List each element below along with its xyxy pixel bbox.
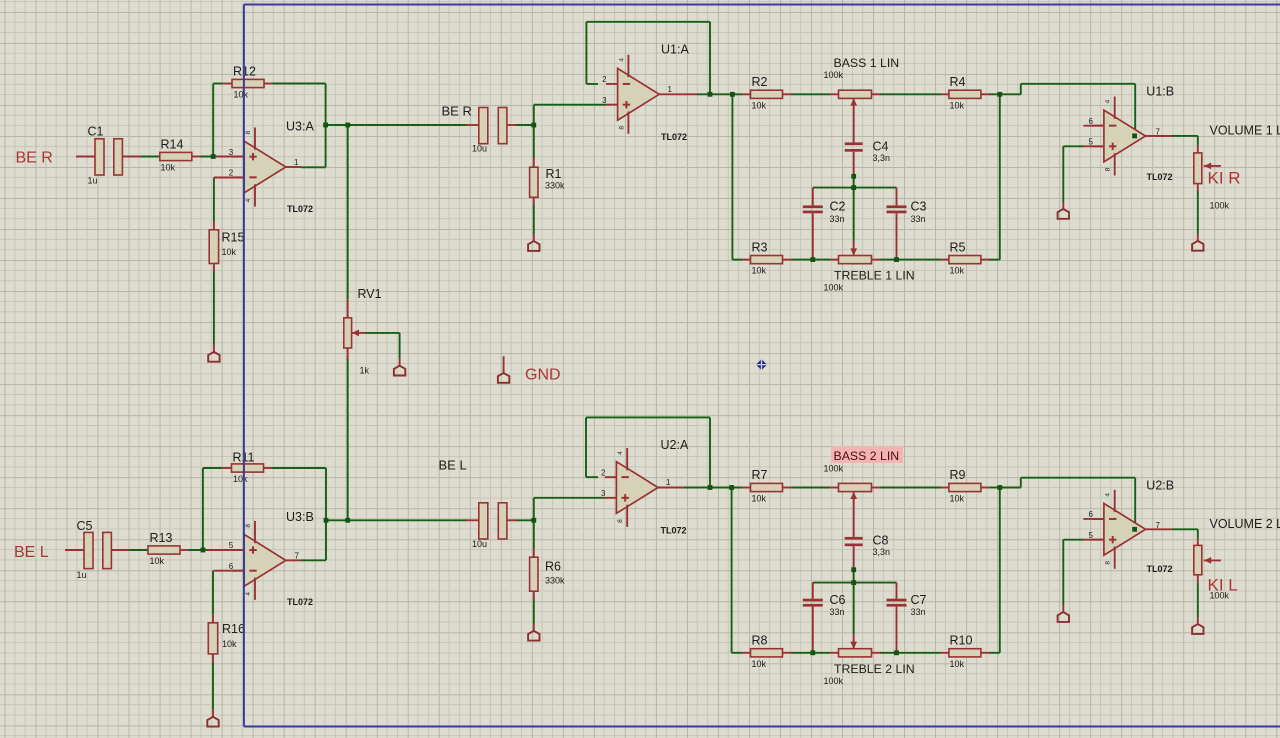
svg-text:100k: 100k [824, 676, 844, 686]
svg-text:5: 5 [1088, 138, 1093, 147]
svg-text:8: 8 [245, 130, 252, 134]
svg-text:8: 8 [1105, 561, 1112, 565]
svg-text:U2:A: U2:A [661, 438, 689, 452]
svg-text:U3:A: U3:A [286, 120, 314, 134]
svg-text:10k: 10k [950, 101, 965, 111]
svg-text:4: 4 [1105, 99, 1112, 103]
svg-text:8: 8 [1105, 167, 1112, 171]
svg-text:R1: R1 [546, 167, 562, 181]
svg-text:TL072: TL072 [287, 204, 313, 214]
svg-text:R4: R4 [950, 75, 966, 89]
svg-text:3: 3 [602, 96, 607, 105]
svg-text:10k: 10k [752, 266, 767, 276]
svg-text:330k: 330k [545, 181, 565, 191]
svg-text:VOLUME 2 LIN: VOLUME 2 LIN [1210, 517, 1280, 531]
svg-text:10k: 10k [752, 101, 767, 111]
svg-text:BE R: BE R [442, 104, 472, 119]
svg-text:10k: 10k [752, 494, 767, 504]
svg-text:10k: 10k [233, 474, 248, 484]
svg-text:6: 6 [1088, 510, 1093, 519]
svg-text:TREBLE 1 LIN: TREBLE 1 LIN [834, 269, 915, 283]
svg-text:R3: R3 [752, 241, 768, 255]
svg-text:C6: C6 [830, 593, 846, 607]
svg-text:8: 8 [245, 524, 252, 528]
svg-text:7: 7 [1156, 521, 1161, 530]
svg-text:1: 1 [294, 158, 299, 167]
svg-text:3: 3 [229, 148, 234, 157]
svg-text:1u: 1u [77, 570, 87, 580]
svg-text:1k: 1k [360, 366, 370, 376]
svg-text:10u: 10u [472, 144, 487, 154]
svg-text:RV1: RV1 [358, 287, 382, 301]
svg-text:7: 7 [1156, 127, 1161, 136]
svg-text:10k: 10k [752, 659, 767, 669]
svg-text:C1: C1 [88, 125, 104, 139]
svg-text:BE R: BE R [16, 150, 53, 167]
svg-text:1: 1 [668, 85, 673, 94]
svg-text:8: 8 [617, 519, 624, 523]
svg-text:BASS 1 LIN: BASS 1 LIN [834, 56, 900, 70]
svg-text:TL072: TL072 [1147, 564, 1173, 574]
svg-text:10k: 10k [161, 163, 176, 173]
svg-text:10k: 10k [234, 90, 249, 100]
svg-text:R13: R13 [150, 531, 173, 545]
svg-text:VOLUME 1 LIN: VOLUME 1 LIN [1210, 124, 1280, 138]
svg-text:3,3n: 3,3n [873, 153, 891, 163]
svg-text:6: 6 [1088, 117, 1093, 126]
svg-text:R7: R7 [752, 468, 768, 482]
svg-text:33n: 33n [830, 607, 845, 617]
svg-text:10k: 10k [222, 639, 237, 649]
svg-text:10k: 10k [150, 556, 165, 566]
svg-text:GND: GND [525, 367, 561, 384]
svg-text:33n: 33n [911, 214, 926, 224]
svg-text:33n: 33n [911, 607, 926, 617]
svg-text:TREBLE 2 LIN: TREBLE 2 LIN [834, 662, 915, 676]
svg-text:5: 5 [229, 541, 234, 550]
svg-text:TL072: TL072 [661, 132, 687, 142]
svg-text:U1:A: U1:A [661, 43, 689, 57]
svg-text:C8: C8 [873, 534, 889, 548]
svg-text:8: 8 [618, 126, 625, 130]
svg-text:R2: R2 [752, 75, 768, 89]
svg-text:10u: 10u [472, 539, 487, 549]
svg-text:4: 4 [618, 58, 625, 62]
svg-text:100k: 100k [1210, 591, 1230, 601]
svg-text:R8: R8 [752, 634, 768, 648]
svg-text:BASS 2 LIN: BASS 2 LIN [834, 449, 900, 463]
svg-text:100k: 100k [1210, 201, 1230, 211]
svg-text:C2: C2 [830, 200, 846, 214]
svg-text:10k: 10k [222, 247, 237, 257]
svg-text:U1:B: U1:B [1146, 85, 1174, 99]
svg-text:10k: 10k [950, 494, 965, 504]
svg-text:R9: R9 [950, 468, 966, 482]
svg-text:TL072: TL072 [287, 597, 313, 607]
svg-text:U3:B: U3:B [286, 510, 314, 524]
svg-text:R10: R10 [950, 634, 973, 648]
svg-text:4: 4 [245, 198, 252, 202]
svg-text:C4: C4 [873, 140, 889, 154]
svg-text:330k: 330k [545, 576, 565, 586]
svg-text:2: 2 [602, 75, 607, 84]
svg-text:100k: 100k [824, 464, 844, 474]
svg-text:4: 4 [617, 451, 624, 455]
svg-text:C3: C3 [911, 200, 927, 214]
svg-text:R15: R15 [222, 231, 245, 245]
svg-text:C5: C5 [77, 519, 93, 533]
svg-text:R5: R5 [950, 241, 966, 255]
svg-text:R14: R14 [161, 138, 184, 152]
svg-text:3,3n: 3,3n [873, 547, 891, 557]
svg-text:2: 2 [229, 169, 234, 178]
svg-text:BE L: BE L [439, 458, 467, 473]
svg-text:7: 7 [295, 552, 300, 561]
svg-text:6: 6 [229, 562, 234, 571]
svg-text:33n: 33n [830, 214, 845, 224]
svg-text:4: 4 [245, 592, 252, 596]
svg-text:3: 3 [601, 489, 606, 498]
svg-text:C7: C7 [911, 593, 927, 607]
svg-text:R16: R16 [222, 622, 245, 636]
svg-text:1u: 1u [88, 176, 98, 186]
svg-text:KI R: KI R [1208, 169, 1241, 188]
svg-text:R6: R6 [545, 560, 561, 574]
svg-text:10k: 10k [950, 266, 965, 276]
svg-text:U2:B: U2:B [1146, 479, 1174, 493]
svg-text:TL072: TL072 [661, 526, 687, 536]
svg-text:1: 1 [666, 478, 671, 487]
svg-text:100k: 100k [824, 70, 844, 80]
svg-text:10k: 10k [950, 659, 965, 669]
svg-text:4: 4 [1105, 493, 1112, 497]
svg-text:5: 5 [1088, 531, 1093, 540]
svg-text:TL072: TL072 [1147, 172, 1173, 182]
svg-text:2: 2 [601, 468, 606, 477]
svg-text:100k: 100k [824, 283, 844, 293]
svg-text:BE L: BE L [14, 544, 49, 561]
